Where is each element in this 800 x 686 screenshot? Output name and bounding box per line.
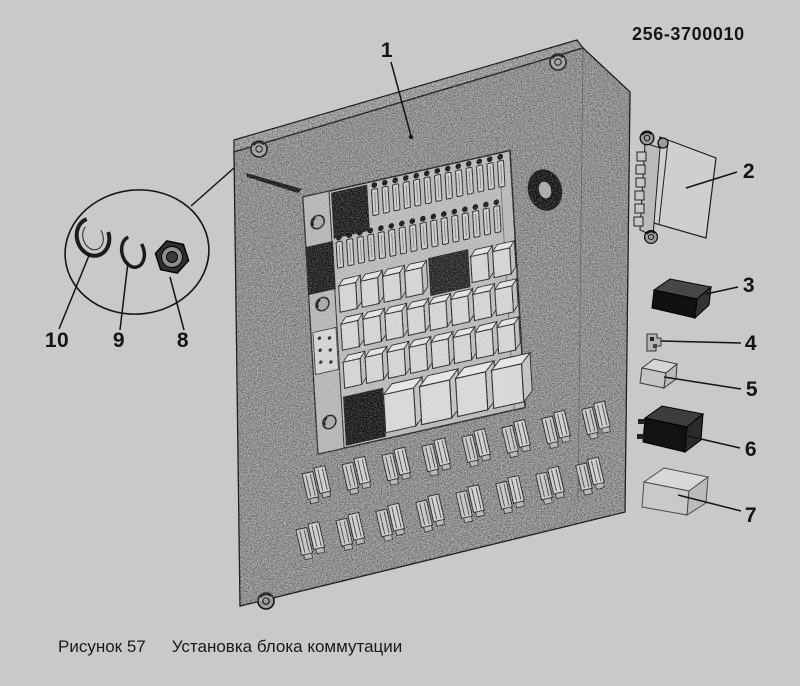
relay-block-part-2 [634,131,716,243]
fuse-part-4 [647,334,661,351]
hardware-detail-callout [59,168,234,321]
callout-label-9: 9 [113,329,125,353]
part-number: 256-3700010 [632,24,745,45]
callout-label-7: 7 [745,504,757,528]
figure-number: Рисунок 57 [58,637,146,656]
callout-label-8: 8 [177,329,189,353]
callout-label-2: 2 [743,160,755,184]
callout-label-10: 10 [45,329,69,353]
callout-label-1: 1 [381,39,393,63]
callout-label-3: 3 [743,274,755,298]
relay-part-7 [642,468,708,515]
callout-label-4: 4 [745,332,757,356]
leader-9 [120,262,128,330]
nut-8 [152,239,191,275]
washer-9 [118,234,147,270]
leader-8 [170,277,184,330]
callout-label-6: 6 [745,438,757,462]
relay-part-6 [637,406,703,452]
figure-title: Установка блока коммутации [172,637,403,656]
panel-texture-light [220,30,640,620]
leader-5 [664,377,741,389]
washer-10 [72,214,114,260]
leader-1-dot [409,135,413,139]
leader-10 [59,253,90,329]
callout-ellipse-leader [191,168,234,206]
callout-label-5: 5 [746,378,758,402]
figure-caption: Рисунок 57Установка блока коммутации [58,637,402,657]
relay-part-5 [640,359,677,388]
relay-part-3 [652,279,711,318]
leader-4 [661,341,741,343]
